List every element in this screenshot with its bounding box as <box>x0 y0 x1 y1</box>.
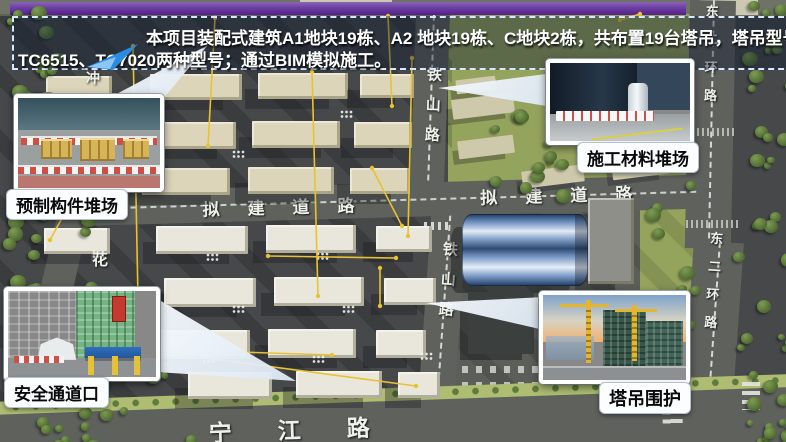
site-path <box>18 176 160 188</box>
fence <box>18 165 160 174</box>
callout-label-precast: 预制构件堆场 <box>6 189 128 220</box>
send-arrow-icon <box>86 43 140 71</box>
crane-line <box>238 352 332 355</box>
crane-point <box>206 144 210 148</box>
tower-crane-photo <box>539 291 690 384</box>
precast-yard-photo <box>14 94 164 192</box>
crane-point <box>378 304 382 308</box>
material-rack <box>80 138 114 161</box>
crane-point <box>414 384 418 388</box>
crane-point <box>400 224 404 228</box>
crane-point <box>394 256 398 260</box>
banner-line-2: TC6515、TC7020两种型号；通过BIM模拟施工。 <box>18 46 391 71</box>
canopy-post <box>134 356 140 375</box>
callout-label-safety: 安全通道口 <box>4 377 109 408</box>
crane-point <box>370 166 374 170</box>
crane-point <box>316 294 320 298</box>
safety-barrier <box>14 356 64 363</box>
red-hoist <box>112 296 127 322</box>
material-rack <box>123 139 149 159</box>
tower-crane-mast <box>632 305 637 361</box>
material-yard-photo <box>546 59 694 145</box>
canopy-post <box>88 356 94 375</box>
material-rack <box>41 139 72 159</box>
green-glass-building <box>603 310 646 370</box>
crane-line <box>408 58 412 236</box>
crane-point <box>390 104 394 108</box>
fenced-enclosure <box>556 111 654 121</box>
crane-point <box>330 353 334 357</box>
crane-point <box>378 266 382 270</box>
crane-line <box>268 256 396 258</box>
crane-line <box>312 72 318 296</box>
crane-point <box>48 238 52 242</box>
bim-site-plan-screenshot: 东二环路 东二环路 铁山路 铁山路 拟建道路 拟建道路 花 冲 宁江路 <box>0 0 786 442</box>
tower-crane-jib <box>615 309 658 312</box>
callout-label-material: 施工材料堆场 <box>577 142 699 173</box>
photo-ground <box>543 366 686 380</box>
crane-point <box>266 254 270 258</box>
safety-passage-photo <box>4 287 160 381</box>
canopy-post <box>112 356 118 375</box>
callout-label-tower-crane: 塔吊围护 <box>599 382 691 414</box>
crane-point <box>406 234 410 238</box>
green-glass-building <box>646 321 683 370</box>
silo <box>628 83 648 113</box>
tower-crane-jib <box>560 304 609 307</box>
crane-line <box>372 168 402 226</box>
photo-background <box>18 98 160 130</box>
tower-crane-mast <box>586 300 591 363</box>
